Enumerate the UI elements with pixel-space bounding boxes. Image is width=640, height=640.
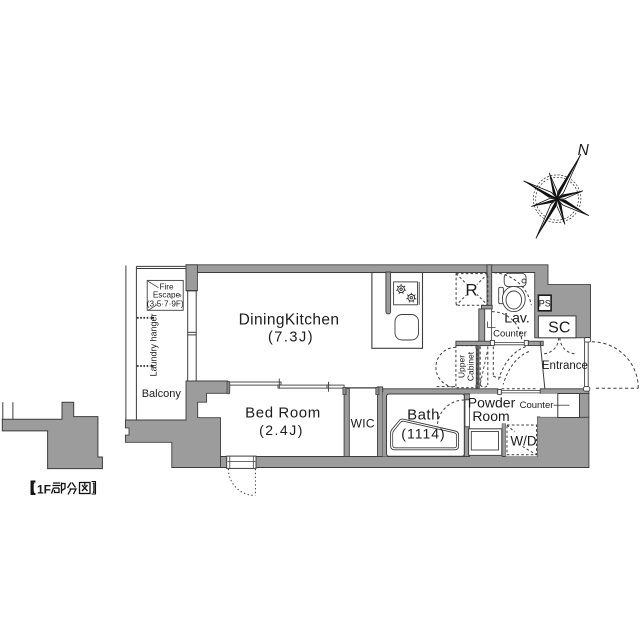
svg-text:(7.3J): (7.3J): [268, 330, 314, 346]
svg-text:1F: 1F: [37, 483, 51, 497]
svg-text:(1114): (1114): [401, 426, 445, 442]
svg-text:SC: SC: [548, 320, 570, 337]
svg-text:Entrance: Entrance: [542, 360, 588, 372]
svg-text:DiningKitchen: DiningKitchen: [239, 312, 340, 329]
svg-text:R: R: [465, 281, 477, 300]
svg-text:(2.4J): (2.4J): [259, 422, 304, 438]
svg-text:Lav.: Lav.: [504, 310, 529, 326]
svg-text:Bath: Bath: [407, 407, 440, 424]
svg-text:Cabinet: Cabinet: [466, 351, 476, 381]
svg-text:Escape: Escape: [153, 291, 181, 300]
svg-text:W/D: W/D: [510, 434, 536, 449]
svg-text:(3·5·7·9F): (3·5·7·9F): [147, 300, 184, 309]
svg-text:Balcony: Balcony: [142, 388, 182, 400]
svg-text:Counter: Counter: [493, 329, 527, 340]
svg-text:Bed Room: Bed Room: [245, 405, 321, 422]
svg-text:N: N: [578, 142, 590, 159]
svg-text:PS: PS: [539, 299, 551, 309]
svg-text:Room: Room: [472, 408, 509, 424]
svg-text:WIC: WIC: [351, 417, 375, 431]
svg-text:Counter: Counter: [520, 400, 554, 411]
svg-text:Laundry hanger: Laundry hanger: [148, 313, 158, 376]
